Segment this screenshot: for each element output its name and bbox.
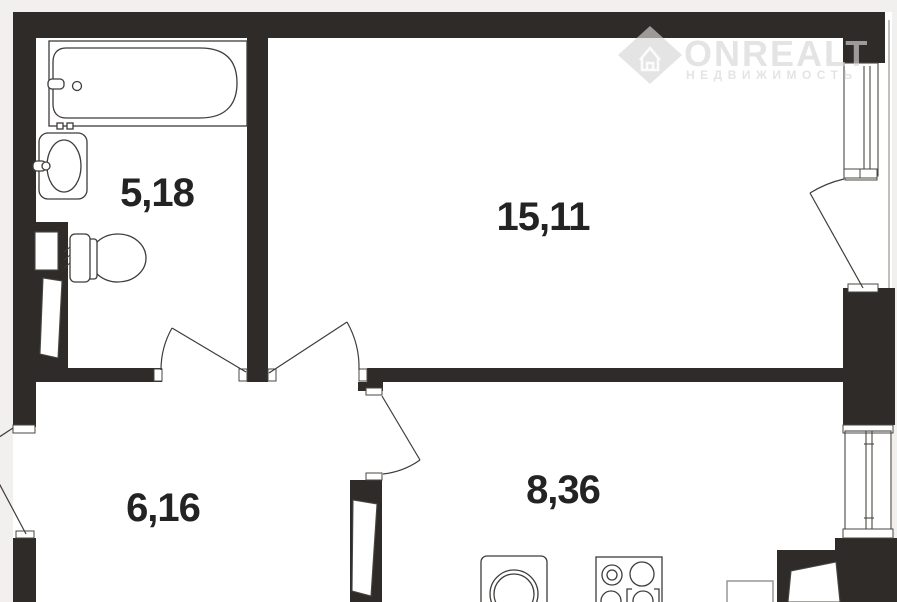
stove-icon <box>596 557 662 602</box>
window-kitchen <box>843 425 893 538</box>
wall-inserts <box>35 232 840 602</box>
living-room-door-swing <box>269 322 359 373</box>
watermark-logo: ONREALT НЕДВИЖИМОСТЬ <box>618 26 869 84</box>
wall-interior-horizontal <box>367 368 843 382</box>
door-swings <box>0 179 863 534</box>
kitchen-sink-icon <box>481 556 547 602</box>
bathroom-door-swing <box>161 328 246 372</box>
room-area-label-hallway: 6,16 <box>126 486 200 530</box>
wall-bathroom-right <box>247 38 268 382</box>
toilet-icon <box>64 234 146 282</box>
room-labels: 5,18 15,11 6,16 8,36 <box>120 171 600 530</box>
floor-plan-page: 5,18 15,11 6,16 8,36 ONREALT НЕДВИЖИМОСТ… <box>0 0 897 602</box>
room-area-label-living-room: 15,11 <box>497 195 591 239</box>
door-jambs <box>13 172 878 538</box>
vent-shaft-icon <box>35 232 58 270</box>
wall-left-lower <box>13 538 36 602</box>
wall-bathroom-bottom <box>13 368 162 382</box>
room-area-label-kitchen: 8,36 <box>526 468 600 512</box>
vent-shaft-2-icon <box>40 278 62 358</box>
floor-plan: 5,18 15,11 6,16 8,36 ONREALT НЕДВИЖИМОСТ… <box>0 0 897 602</box>
cabinet-icon <box>727 581 773 602</box>
wall-right-bottom <box>843 538 897 602</box>
room-area-label-bathroom: 5,18 <box>120 171 195 215</box>
tagline-text: НЕДВИЖИМОСТЬ <box>686 68 858 82</box>
sink-icon <box>33 133 87 199</box>
wall-left-upper <box>13 38 36 222</box>
bathtub-icon <box>48 41 247 129</box>
balcony-door-swing <box>810 179 863 288</box>
wall-right-mid <box>843 288 895 425</box>
wall-left-mid <box>13 382 36 427</box>
kitchen-door-swing <box>382 396 420 474</box>
